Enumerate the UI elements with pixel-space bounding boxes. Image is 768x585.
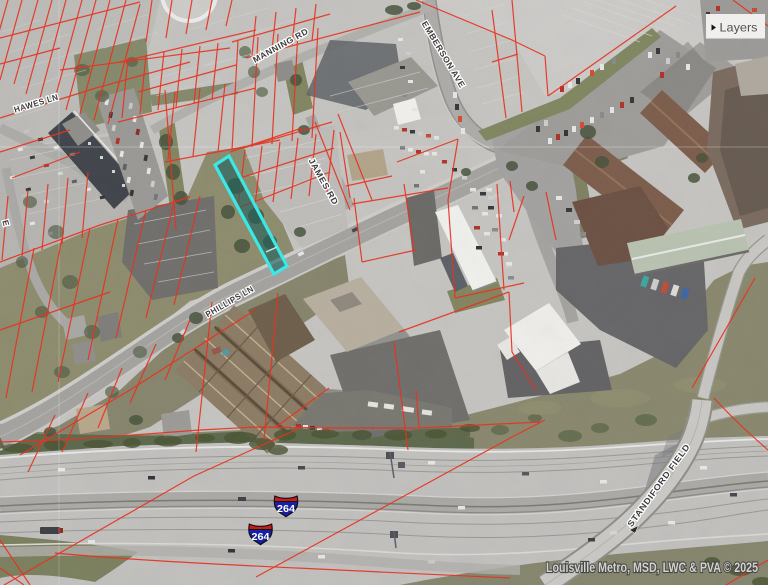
svg-text:Louisville Metro, MSD, LWC & P: Louisville Metro, MSD, LWC & PVA © 2025	[546, 560, 758, 575]
svg-text:264: 264	[277, 504, 295, 515]
svg-text:264: 264	[252, 532, 270, 543]
svg-text:Layers: Layers	[720, 21, 758, 35]
